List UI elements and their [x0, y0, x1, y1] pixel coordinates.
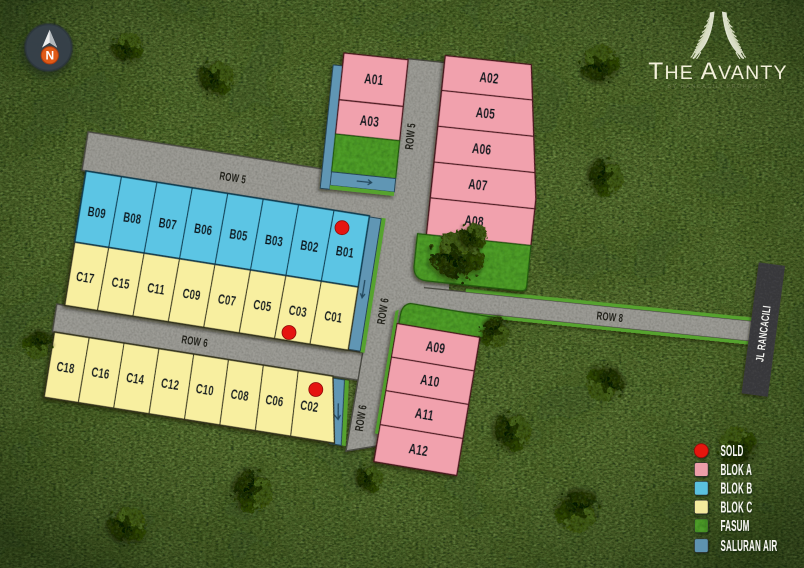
svg-text:SALURAN AIR: SALURAN AIR: [721, 537, 778, 555]
svg-text:C10: C10: [195, 380, 215, 399]
svg-text:A03: A03: [359, 111, 380, 130]
svg-text:B07: B07: [158, 214, 178, 233]
svg-text:B02: B02: [299, 237, 319, 256]
svg-text:N: N: [45, 49, 54, 63]
svg-text:ROW 8: ROW 8: [596, 310, 624, 326]
svg-text:C05: C05: [252, 296, 272, 315]
svg-text:C17: C17: [75, 268, 95, 287]
svg-text:A06: A06: [471, 139, 492, 158]
svg-text:C14: C14: [125, 369, 145, 388]
svg-text:C16: C16: [90, 364, 110, 383]
svg-text:B05: B05: [228, 225, 248, 244]
svg-text:C09: C09: [181, 285, 201, 304]
svg-text:A07: A07: [467, 175, 488, 194]
svg-text:A12: A12: [408, 439, 430, 459]
svg-text:C06: C06: [264, 391, 284, 410]
svg-text:C03: C03: [288, 302, 308, 321]
svg-text:BLOK A: BLOK A: [721, 461, 753, 479]
svg-text:C11: C11: [146, 279, 166, 298]
svg-text:BY RANCACILI PROPERTY: BY RANCACILI PROPERTY: [667, 84, 768, 90]
svg-text:C07: C07: [217, 290, 237, 309]
svg-text:C02: C02: [299, 397, 319, 416]
svg-text:A10: A10: [419, 370, 441, 390]
svg-text:THE AVANTY: THE AVANTY: [648, 58, 787, 85]
svg-text:B08: B08: [122, 209, 142, 228]
svg-text:B03: B03: [264, 231, 284, 250]
svg-text:A02: A02: [479, 68, 500, 87]
svg-text:A11: A11: [414, 404, 435, 424]
svg-text:SOLD: SOLD: [721, 442, 744, 460]
svg-text:FASUM: FASUM: [721, 517, 750, 535]
svg-text:C08: C08: [230, 386, 250, 405]
svg-text:BLOK B: BLOK B: [721, 480, 753, 498]
svg-text:C15: C15: [110, 274, 130, 293]
svg-text:A01: A01: [363, 69, 384, 88]
svg-text:A09: A09: [425, 337, 447, 357]
svg-text:BLOK C: BLOK C: [721, 498, 753, 516]
svg-text:A05: A05: [475, 103, 496, 122]
svg-text:B09: B09: [87, 203, 107, 222]
svg-text:C01: C01: [323, 307, 343, 326]
svg-text:B01: B01: [335, 242, 355, 261]
svg-text:C18: C18: [55, 358, 75, 377]
svg-text:C12: C12: [160, 375, 180, 394]
svg-text:B06: B06: [193, 220, 213, 239]
